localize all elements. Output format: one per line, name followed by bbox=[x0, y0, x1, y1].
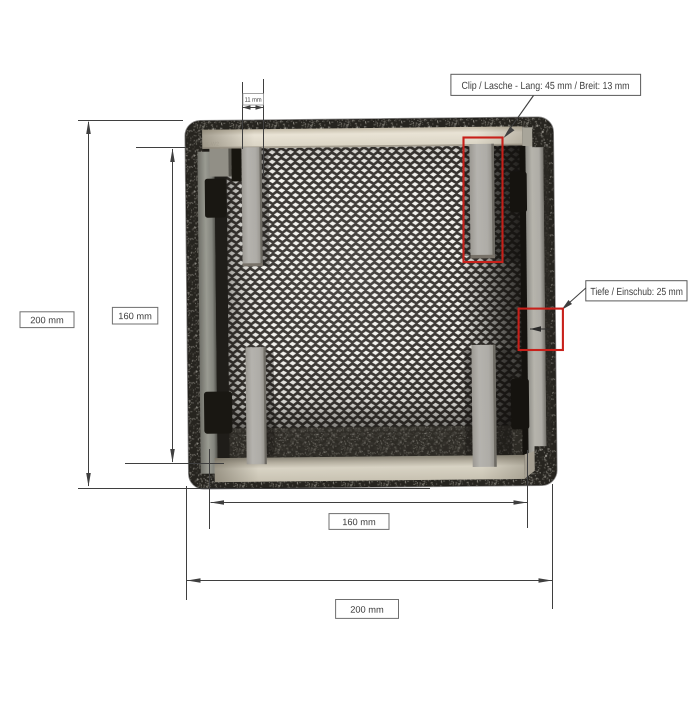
svg-text:200 mm: 200 mm bbox=[350, 605, 384, 615]
svg-text:160 mm: 160 mm bbox=[342, 517, 376, 527]
svg-text:K-W2: K-W2 bbox=[205, 142, 219, 148]
svg-text:200 mm: 200 mm bbox=[30, 315, 64, 325]
svg-text:Tiefe / Einschub: 25 mm: Tiefe / Einschub: 25 mm bbox=[590, 287, 683, 298]
svg-text:160 mm: 160 mm bbox=[118, 311, 152, 321]
svg-text:11 mm: 11 mm bbox=[245, 97, 262, 104]
svg-text:Clip / Lasche - Lang: 45 mm /: Clip / Lasche - Lang: 45 mm / Breit: 13 … bbox=[461, 81, 629, 92]
